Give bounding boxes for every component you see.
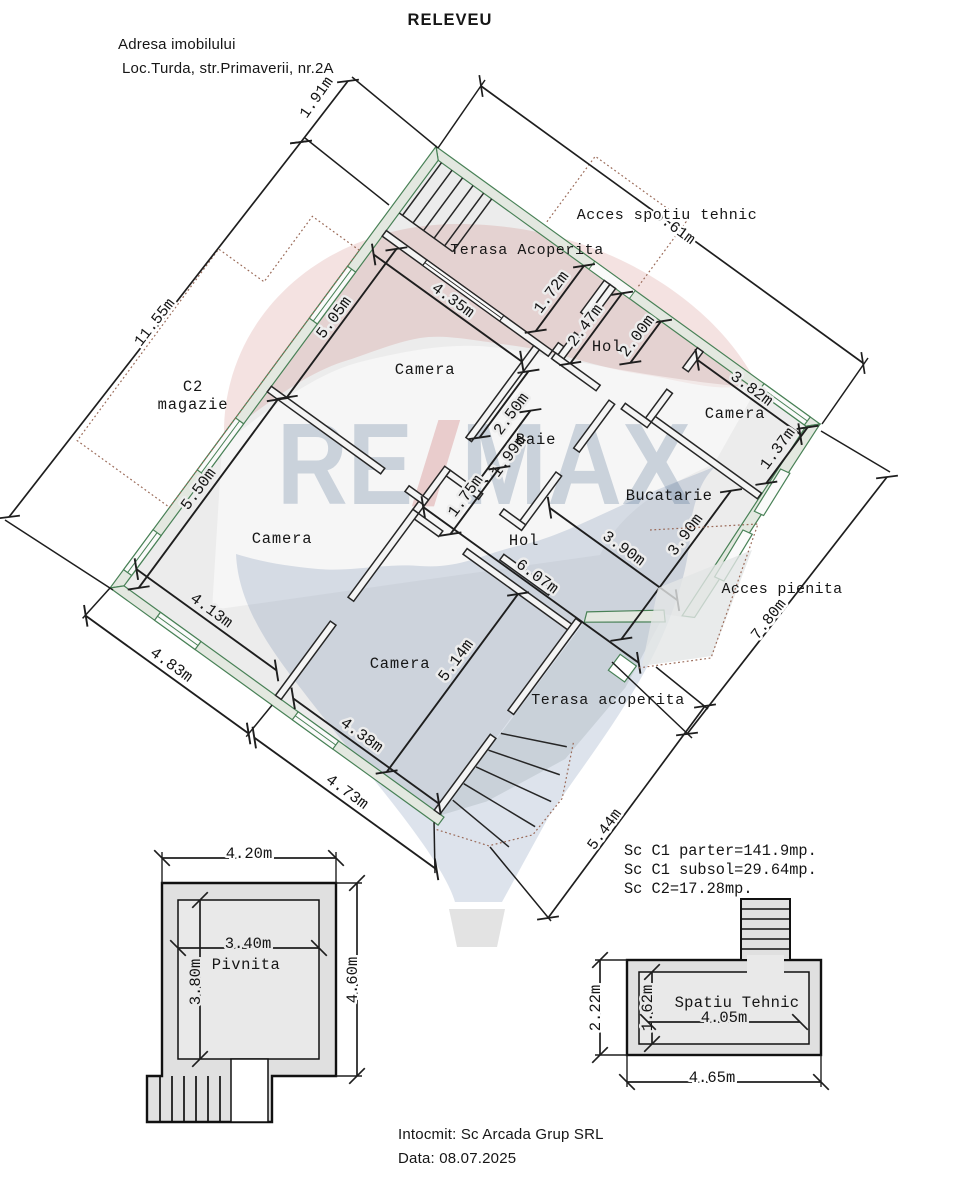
svg-text:Camera: Camera (370, 655, 431, 673)
svg-text:4.60m: 4.60m (344, 957, 362, 1004)
svg-text:Hol: Hol (592, 338, 622, 356)
svg-text:Camera: Camera (252, 530, 313, 548)
svg-text:C2: C2 (183, 378, 203, 396)
svg-text:Data: 08.07.2025: Data: 08.07.2025 (398, 1150, 516, 1167)
svg-text:Loc.Turda, str.Primaverii, nr.: Loc.Turda, str.Primaverii, nr.2A (122, 60, 334, 77)
svg-text:Camera: Camera (395, 361, 456, 379)
svg-text:Pivnita: Pivnita (212, 956, 281, 974)
svg-text:Hol: Hol (509, 532, 539, 550)
svg-text:RE: RE (277, 399, 413, 529)
svg-text:1.62m: 1.62m (639, 985, 657, 1032)
svg-text:4.65m: 4.65m (689, 1069, 736, 1087)
svg-text:Terasa acoperita: Terasa acoperita (531, 692, 685, 709)
svg-text:Bucatarie: Bucatarie (626, 487, 712, 505)
svg-text:3.80m: 3.80m (187, 959, 205, 1006)
svg-text:Acces spotiu tehnic: Acces spotiu tehnic (577, 207, 758, 224)
svg-text:RELEVEU: RELEVEU (408, 11, 493, 29)
svg-text:Camera: Camera (705, 405, 766, 423)
svg-text:2.22m: 2.22m (587, 985, 605, 1032)
svg-text:Terasa Acoperita: Terasa Acoperita (450, 242, 604, 259)
svg-text:3.40m: 3.40m (225, 935, 272, 953)
svg-text:Sc C1 parter=141.9mp.: Sc C1 parter=141.9mp. (624, 842, 817, 860)
svg-text:Sc C2=17.28mp.: Sc C2=17.28mp. (624, 880, 753, 898)
svg-text:Spatiu Tehnic: Spatiu Tehnic (675, 994, 800, 1012)
svg-text:Acces pienita: Acces pienita (722, 581, 843, 598)
svg-text:magazie: magazie (158, 396, 229, 414)
svg-text:Adresa imobilului: Adresa imobilului (118, 36, 236, 53)
svg-text:Sc C1 subsol=29.64mp.: Sc C1 subsol=29.64mp. (624, 861, 817, 879)
svg-text:Baie: Baie (516, 431, 556, 449)
svg-text:Intocmit: Sc Arcada Grup SRL: Intocmit: Sc Arcada Grup SRL (398, 1126, 604, 1143)
svg-text:4.20m: 4.20m (226, 845, 273, 863)
